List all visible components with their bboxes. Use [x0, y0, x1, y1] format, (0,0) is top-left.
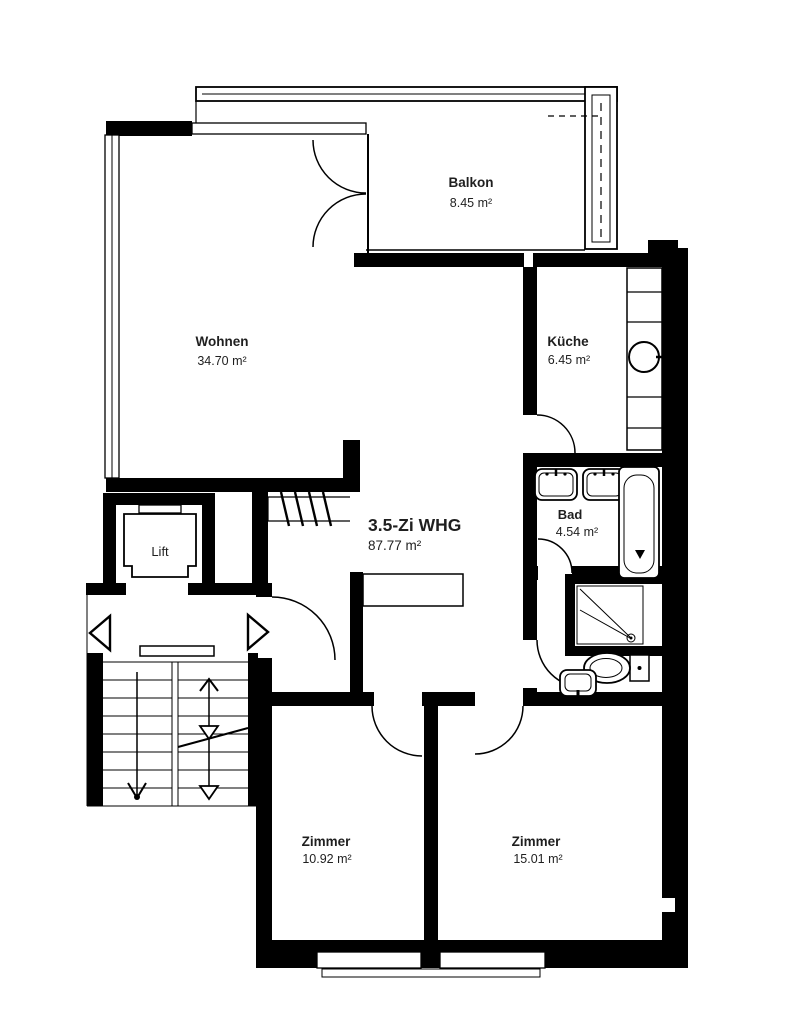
bathtub-icon: [619, 467, 659, 578]
floor-plan-drawing: Lift: [0, 0, 800, 1032]
elevator-door: [139, 505, 181, 513]
window-bedroom-2: [440, 952, 545, 968]
bathroom-fixtures: [535, 467, 659, 578]
washbasin-icon: [535, 469, 577, 500]
room-name: Zimmer: [512, 834, 562, 849]
room-area: 15.01 m²: [513, 852, 562, 866]
kitchen-door-icon: [537, 415, 575, 453]
room-label-zimmer-links: Zimmer 10.92 m²: [302, 834, 352, 866]
hall-furniture: [268, 492, 463, 606]
room-label-balkon: Balkon 8.45 m²: [448, 175, 493, 210]
room-area: 34.70 m²: [197, 354, 246, 368]
room-area: 6.45 m²: [548, 353, 590, 367]
entrance-door-icon: [272, 597, 335, 660]
apartment-title: 3.5-Zi WHG 87.77 m²: [368, 515, 461, 553]
window-north: [192, 123, 366, 134]
staircase: [87, 595, 268, 806]
room-label-zimmer-rechts: Zimmer 15.01 m²: [512, 834, 563, 866]
window-sill: [322, 969, 540, 977]
floor-plan: Lift: [0, 0, 800, 1032]
apartment-area-text: 87.77 m²: [368, 538, 422, 553]
elevator-label: Lift: [151, 544, 169, 559]
room-label-kueche: Küche 6.45 m²: [547, 334, 590, 367]
window-bedroom-1: [317, 952, 421, 968]
bedroom-1-door-icon: [372, 706, 422, 756]
balcony-railing: [196, 87, 617, 250]
stair-handrail: [140, 646, 214, 656]
room-area: 8.45 m²: [450, 196, 492, 210]
hall-cupboard-icon: [363, 574, 463, 606]
room-label-wohnen: Wohnen 34.70 m²: [196, 334, 249, 368]
room-name: Bad: [558, 507, 583, 522]
room-name: Küche: [547, 334, 589, 349]
room-area: 10.92 m²: [302, 852, 351, 866]
bedroom-2-door-icon: [475, 706, 523, 754]
doors: [272, 134, 585, 756]
shower-tray-icon: [577, 586, 643, 644]
apartment-title-text: 3.5-Zi WHG: [368, 515, 461, 535]
elevator: Lift: [124, 505, 196, 577]
balcony-door-leaf-icon: [313, 140, 366, 193]
landing-arrow-right-icon: [248, 615, 268, 649]
kitchen-fixtures: [627, 268, 662, 450]
room-label-bad: Bad 4.54 m²: [556, 507, 598, 539]
room-name: Zimmer: [302, 834, 352, 849]
room-name: Balkon: [448, 175, 493, 190]
wardrobe-icon: [268, 492, 350, 526]
bathroom-door-icon: [538, 539, 572, 573]
room-area: 4.54 m²: [556, 525, 598, 539]
room-name: Wohnen: [196, 334, 249, 349]
balcony-door-leaf-icon: [313, 194, 366, 247]
kitchen-sink-icon: [629, 342, 659, 372]
landing-arrow-left-icon: [90, 616, 110, 650]
stair-direction-arrows-icon: [128, 672, 248, 800]
wc-washbasin-icon: [560, 670, 596, 699]
